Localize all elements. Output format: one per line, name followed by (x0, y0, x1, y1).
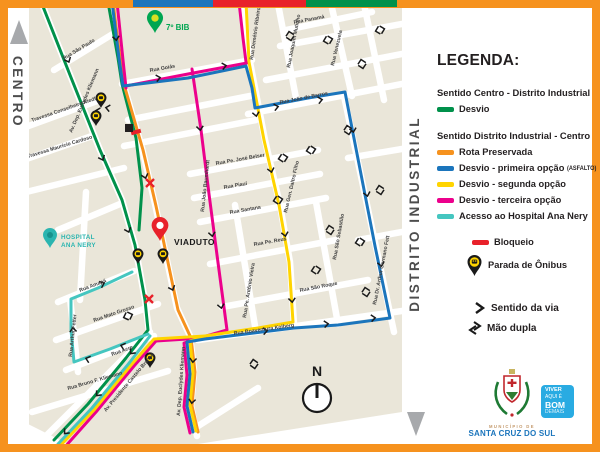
top-bar-segment-green (306, 0, 397, 7)
badge-line: DEMAIS (545, 410, 574, 415)
legend-item: Desvio - terceira opção (437, 195, 592, 205)
badge-line: AQUI É (545, 395, 574, 400)
swatch-green (437, 107, 454, 112)
legend-title: LEGENDA: (437, 52, 592, 70)
legend-sentido: Sentido da via (472, 303, 592, 313)
legend-item-label: Mão dupla (487, 323, 536, 334)
legend-item-label: Acesso ao Hospital Ana Nery (459, 211, 588, 221)
swatch-yellow (437, 182, 454, 187)
top-bar-segment-red (213, 0, 306, 7)
legend-item-label: Rota Preservada (459, 147, 532, 157)
municipio-line2: SANTA CRUZ DO SUL (462, 429, 562, 438)
distrito-industrial-label: DISTRITO INDUSTRIAL (407, 116, 422, 312)
legend-item: Rota Preservada (437, 147, 592, 157)
hospital-label: HOSPITAL (61, 234, 95, 241)
centro-arrow-icon (10, 20, 28, 44)
hospital-label: ANA NERY (61, 242, 96, 249)
compass-n: N (312, 363, 322, 379)
badge-line: VIVER (545, 388, 574, 394)
double-chevron-icon (468, 321, 482, 335)
legend-section2-heading: Sentido Distrito Industrial - Centro (437, 130, 592, 141)
legend-item-label: Sentido da via (491, 303, 559, 314)
swatch-blue (437, 166, 454, 171)
legend-item-label: Desvio - terceira opção (459, 195, 561, 205)
viaduto-label: VIADUTO (174, 237, 215, 247)
legend-section1-heading: Sentido Centro - Distrito Industrial (437, 87, 592, 98)
right-margin: DISTRITO INDUSTRIAL (402, 8, 430, 444)
legend-item: Desvio - segunda opção (437, 179, 592, 189)
viaduct-structure (125, 124, 133, 132)
legend-mao-dupla: Mão dupla (468, 323, 592, 333)
legend-item-label: Desvio - primeira opção (459, 163, 564, 173)
swatch-teal (437, 214, 454, 219)
asfalto-tag: (ASFALTO) (567, 165, 596, 172)
centro-label: CENTRO (10, 56, 25, 128)
legend-item-label: Desvio (459, 104, 490, 114)
distrito-arrow-icon (407, 412, 425, 436)
legend-item: Acesso ao Hospital Ana Nery (437, 211, 592, 221)
legend-item: Desvio - primeira opção (ASFALTO) (437, 163, 592, 173)
legend-parada: Parada de Ônibus (466, 253, 592, 277)
swatch-orange (437, 150, 454, 155)
bus-stop-pin-icon (466, 253, 483, 277)
legend-item-label: Bloqueio (494, 237, 534, 247)
legend-item-label: Parada de Ônibus (488, 260, 567, 270)
top-bar-segment-blue (133, 0, 213, 7)
bib-label: 7º BIB (166, 23, 190, 32)
badge-line: BOM (545, 401, 574, 410)
legend-panel: LEGENDA: Sentido Centro - Distrito Indus… (430, 8, 592, 444)
swatch-red (472, 240, 489, 245)
swatch-pink (437, 198, 454, 203)
city-map: 7º BIB HOSPITAL ANA NERY VIADUTO N Rua S… (28, 8, 402, 444)
chevron-icon (472, 301, 486, 315)
crest-icon (490, 368, 534, 418)
legend-item: Desvio (437, 104, 592, 114)
viver-badge: VIVER AQUI É BOM DEMAIS (541, 385, 574, 418)
legend-bloqueio: Bloqueio (472, 237, 592, 247)
left-margin: CENTRO (8, 8, 29, 444)
legend-item-label: Desvio - segunda opção (459, 179, 566, 189)
detour-map-poster: 7º BIB HOSPITAL ANA NERY VIADUTO N Rua S… (0, 0, 600, 452)
